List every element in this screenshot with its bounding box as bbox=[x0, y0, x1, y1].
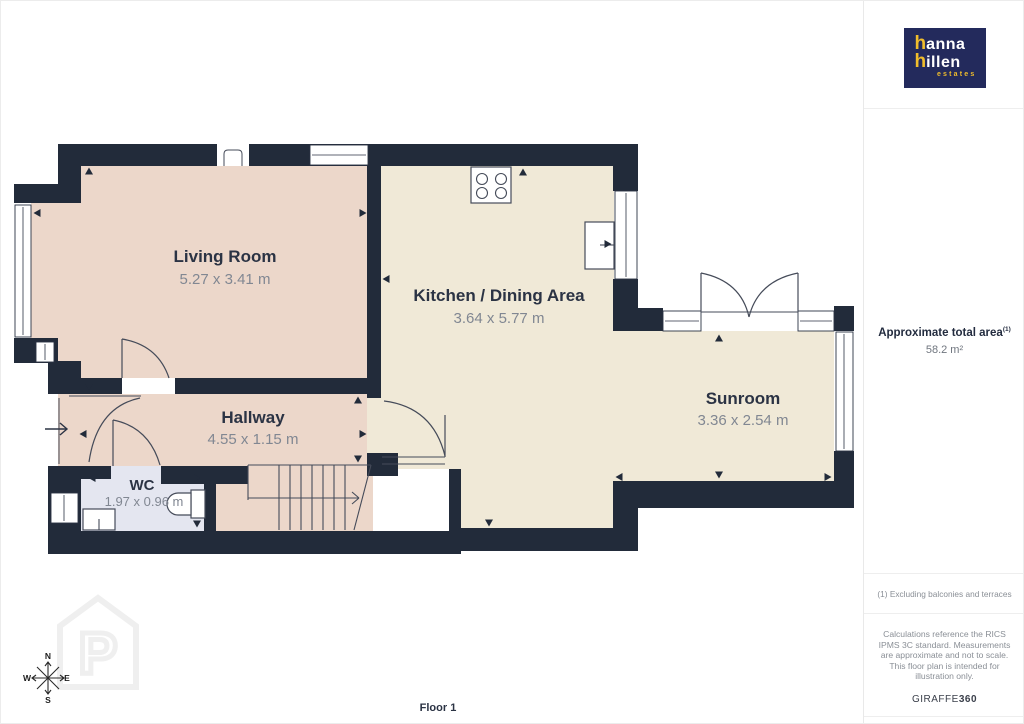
footnote-section: (1) Excluding balconies and terraces bbox=[864, 574, 1024, 614]
hallway-floor bbox=[58, 386, 379, 469]
logo-word: anna bbox=[926, 36, 965, 53]
total-area-section: Approximate total area(1) 58.2 m² bbox=[864, 109, 1024, 574]
provider-suffix: 360 bbox=[959, 694, 977, 705]
agency-logo-line2: hillen bbox=[915, 53, 986, 71]
fireplace bbox=[217, 144, 249, 166]
kitchen-doorway-floor bbox=[367, 398, 381, 453]
room-name-label: Sunroom bbox=[706, 389, 781, 408]
sink-icon bbox=[83, 509, 115, 530]
info-sidebar: hanna hillen estates Approximate total a… bbox=[863, 1, 1024, 724]
disclaimer-text: Calculations reference the RICS IPMS 3C … bbox=[878, 629, 1012, 682]
compass-west-label: W bbox=[23, 673, 32, 683]
agency-logo-section: hanna hillen estates bbox=[864, 1, 1024, 109]
room-name-label: WC bbox=[130, 477, 155, 494]
logo-initial: h bbox=[915, 51, 927, 72]
compass-rose: N S W E bbox=[23, 651, 70, 705]
room-name-label: Living Room bbox=[174, 247, 277, 266]
total-area-value: 58.2 m² bbox=[926, 344, 963, 356]
watermark-logo: P bbox=[60, 598, 136, 687]
provider-logo: GIRAFFE360 bbox=[912, 694, 977, 705]
logo-word: illen bbox=[926, 54, 961, 71]
kitchen-sunroom-floor bbox=[381, 166, 834, 528]
disclaimer-section: Calculations reference the RICS IPMS 3C … bbox=[864, 614, 1024, 717]
room-dims-label: 3.64 x 5.77 m bbox=[454, 310, 545, 327]
agency-logo-tagline: estates bbox=[904, 71, 977, 78]
agency-logo: hanna hillen estates bbox=[904, 28, 986, 88]
total-area-text: Approximate total area bbox=[878, 326, 1003, 338]
floor-plan-page: Living Room 5.27 x 3.41 m Kitchen / Dini… bbox=[0, 0, 1024, 724]
room-dims-label: 4.55 x 1.15 m bbox=[208, 431, 299, 448]
total-area-label: Approximate total area(1) bbox=[878, 326, 1011, 339]
floor-plan-canvas: Living Room 5.27 x 3.41 m Kitchen / Dini… bbox=[1, 1, 863, 724]
compass-south-label: S bbox=[45, 695, 51, 705]
room-dims-label: 3.36 x 2.54 m bbox=[698, 412, 789, 429]
room-name-label: Kitchen / Dining Area bbox=[413, 286, 585, 305]
room-name-label: Hallway bbox=[221, 408, 285, 427]
stove-icon bbox=[471, 167, 511, 203]
compass-north-label: N bbox=[45, 651, 51, 661]
total-area-note-ref: (1) bbox=[1003, 326, 1011, 333]
footnote-text: (1) Excluding balconies and terraces bbox=[877, 589, 1011, 599]
room-dims-label: 5.27 x 3.41 m bbox=[180, 271, 271, 288]
provider-name: GIRAFFE bbox=[912, 694, 959, 705]
room-dims-label: 1.97 x 0.96 m bbox=[105, 494, 184, 509]
compass-east-label: E bbox=[64, 673, 70, 683]
floor-label: Floor 1 bbox=[420, 702, 457, 714]
window-sunroom-right bbox=[836, 332, 853, 451]
appliance-icon bbox=[585, 222, 614, 269]
svg-text:P: P bbox=[79, 621, 118, 686]
window-wc bbox=[51, 493, 78, 523]
